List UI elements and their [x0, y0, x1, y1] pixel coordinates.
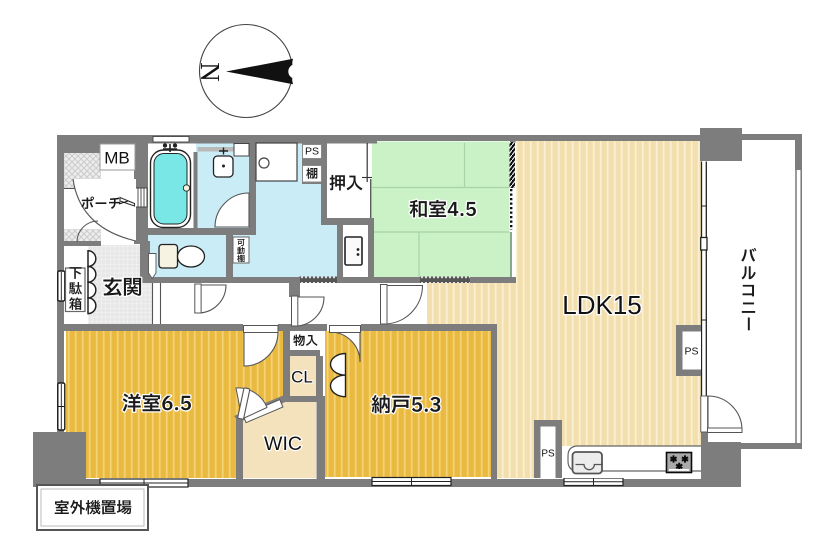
svg-text:WIC: WIC [264, 433, 302, 455]
svg-text:LDK15: LDK15 [562, 290, 642, 320]
svg-text:N: N [195, 62, 225, 82]
svg-text:PS: PS [541, 449, 555, 460]
svg-text:PS: PS [305, 146, 319, 158]
svg-text:PS: PS [684, 346, 698, 358]
svg-text:MB: MB [104, 149, 130, 168]
svg-text:CL: CL [291, 368, 313, 387]
